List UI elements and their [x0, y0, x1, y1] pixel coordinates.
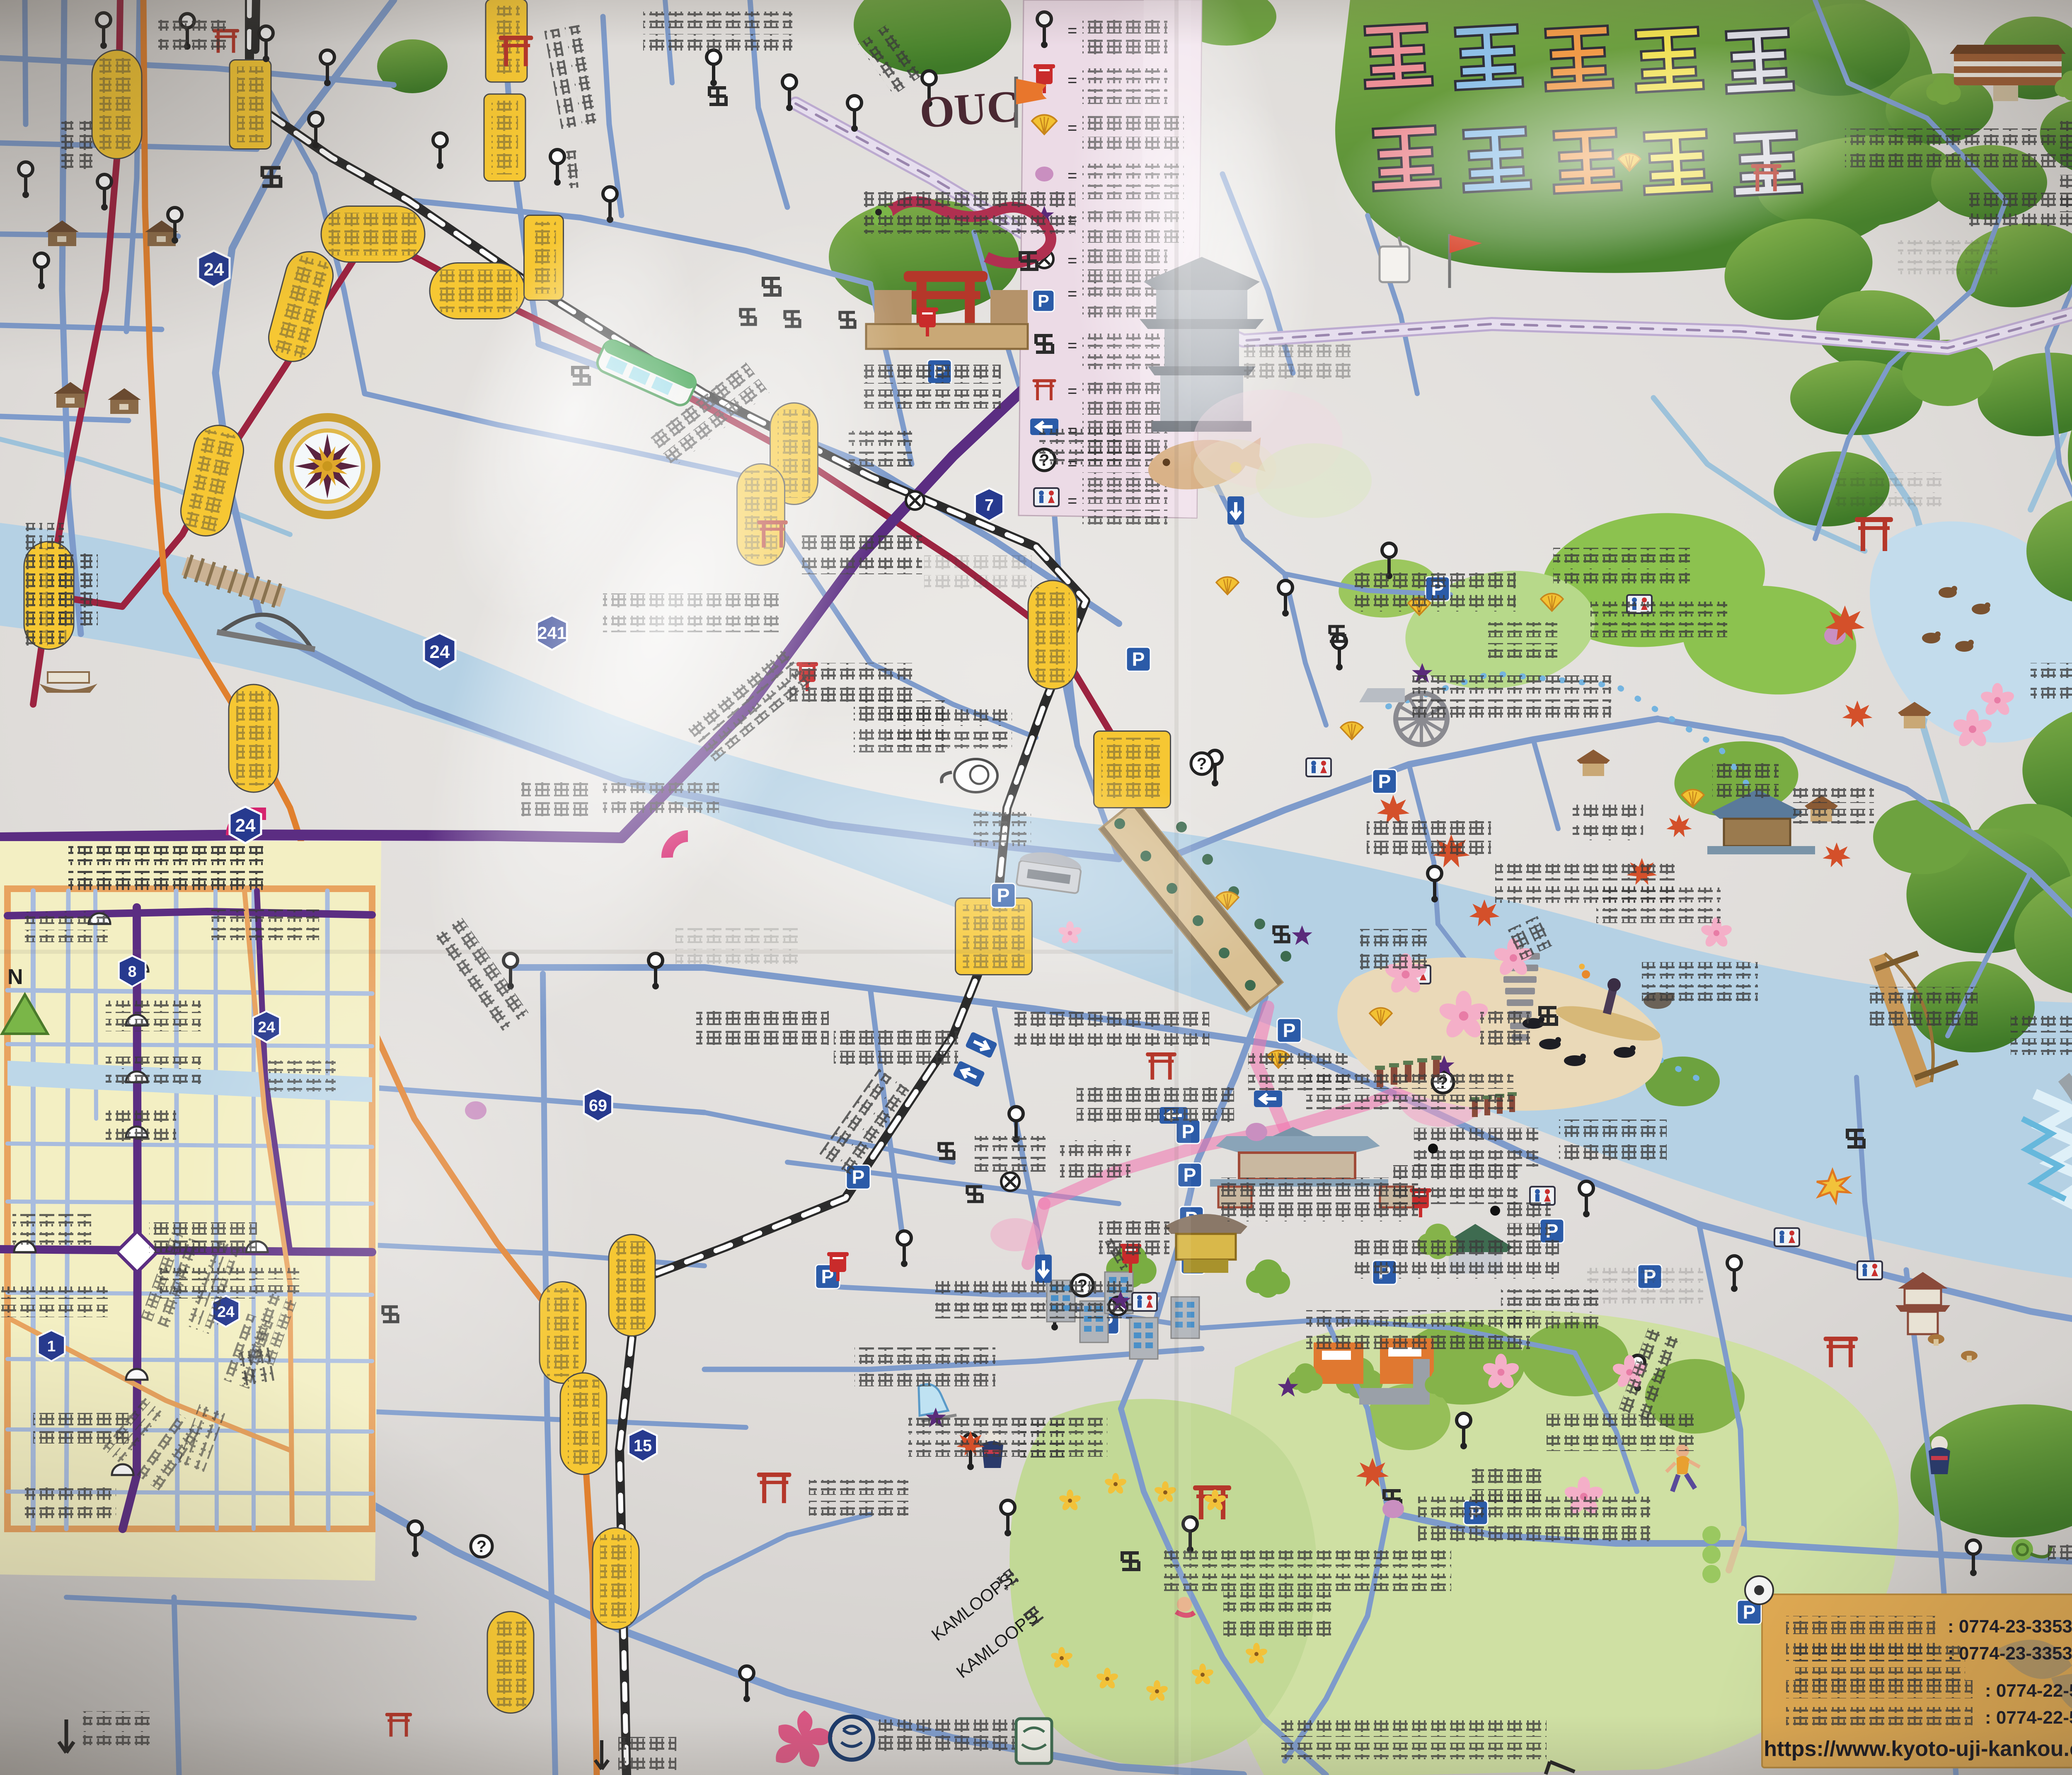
- svg-text:P: P: [852, 1166, 865, 1188]
- svg-text:?: ?: [1197, 755, 1207, 773]
- svg-text:69: 69: [589, 1096, 607, 1115]
- svg-text:P: P: [1132, 648, 1145, 670]
- svg-text:8: 8: [128, 963, 137, 980]
- svg-text:=: =: [1067, 382, 1077, 400]
- svg-text:P: P: [1038, 291, 1049, 311]
- svg-text:24: 24: [430, 642, 450, 662]
- svg-text:24: 24: [235, 815, 256, 836]
- svg-text:N: N: [7, 965, 23, 989]
- svg-text:OUC: OUC: [918, 81, 1021, 137]
- svg-text:=: =: [1067, 336, 1077, 355]
- svg-text:P: P: [1283, 1020, 1296, 1041]
- svg-text:=: =: [1067, 71, 1077, 89]
- svg-text:=: =: [1067, 492, 1077, 510]
- svg-text:15: 15: [634, 1436, 652, 1455]
- svg-text:P: P: [1378, 771, 1391, 792]
- svg-text:7: 7: [985, 496, 994, 514]
